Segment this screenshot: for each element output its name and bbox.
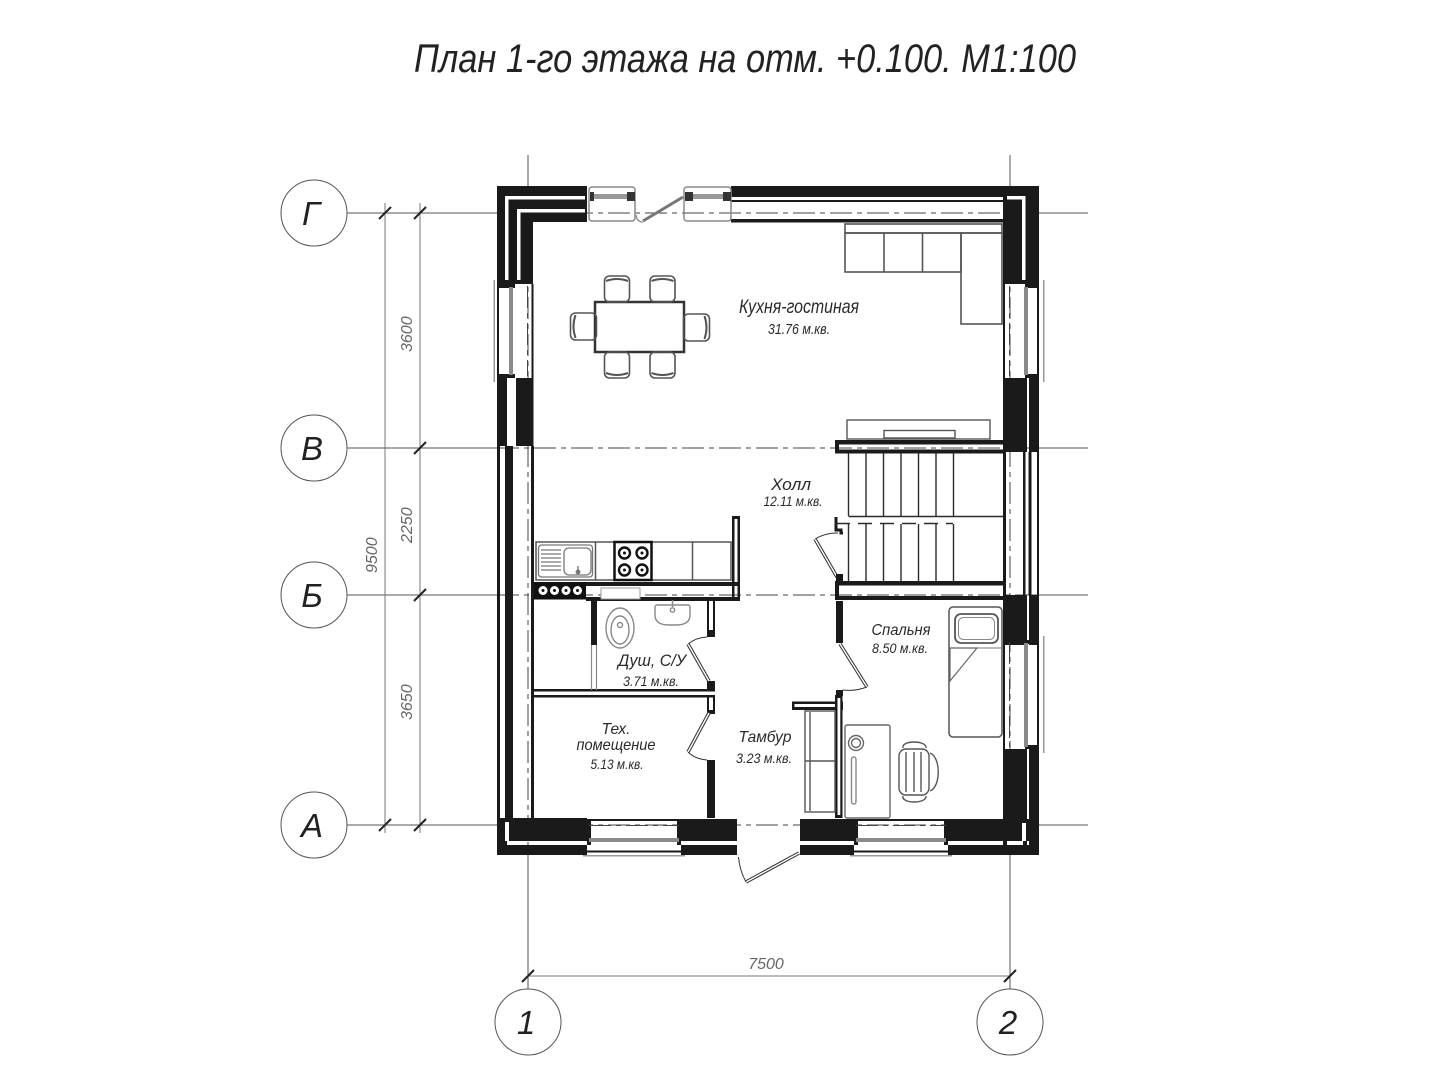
svg-text:Тех.: Тех.: [602, 721, 631, 738]
svg-text:Г: Г: [302, 195, 322, 232]
svg-text:2250: 2250: [399, 507, 416, 544]
svg-text:Душ, С/У: Душ, С/У: [616, 651, 688, 670]
svg-text:8.50 м.кв.: 8.50 м.кв.: [872, 640, 928, 656]
svg-text:3650: 3650: [399, 684, 416, 720]
svg-text:9500: 9500: [364, 537, 381, 573]
svg-text:Кухня-гостиная: Кухня-гостиная: [739, 297, 859, 318]
svg-text:Спальня: Спальня: [872, 622, 931, 639]
svg-text:31.76 м.кв.: 31.76 м.кв.: [768, 321, 830, 338]
svg-text:Тамбур: Тамбур: [739, 729, 792, 746]
svg-text:В: В: [301, 430, 323, 467]
svg-text:Б: Б: [301, 577, 322, 614]
svg-text:План 1-го этажа на отм. +0.100: План 1-го этажа на отм. +0.100. М1:100: [414, 37, 1076, 81]
svg-text:3.23 м.кв.: 3.23 м.кв.: [736, 750, 792, 766]
svg-text:помещение: помещение: [577, 737, 656, 754]
svg-text:7500: 7500: [748, 956, 784, 973]
svg-text:1: 1: [517, 1004, 535, 1041]
svg-text:12.11 м.кв.: 12.11 м.кв.: [764, 493, 823, 509]
svg-text:2: 2: [998, 1004, 1017, 1041]
svg-text:5.13 м.кв.: 5.13 м.кв.: [591, 756, 644, 772]
svg-text:А: А: [299, 807, 323, 844]
svg-text:3600: 3600: [399, 316, 416, 352]
svg-text:Холл: Холл: [770, 475, 811, 494]
svg-text:3.71 м.кв.: 3.71 м.кв.: [623, 673, 679, 689]
